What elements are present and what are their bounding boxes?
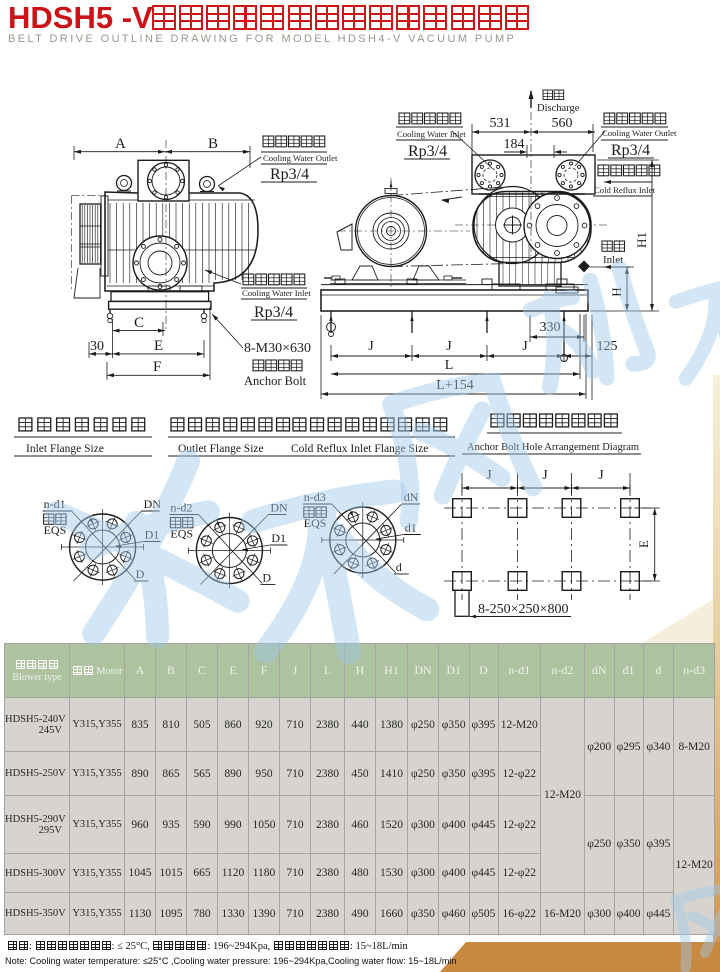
svg-text:J: J — [446, 339, 452, 354]
svg-text:C: C — [134, 315, 144, 331]
svg-text:EQS: EQS — [304, 516, 327, 530]
svg-text:Rp3/4: Rp3/4 — [254, 304, 293, 321]
svg-text:n-d1: n-d1 — [44, 497, 66, 511]
svg-text:n-d2: n-d2 — [170, 501, 192, 515]
svg-text:dN: dN — [404, 490, 419, 504]
svg-text:8-M30×630: 8-M30×630 — [244, 341, 311, 356]
svg-text:Rp3/4: Rp3/4 — [611, 142, 650, 159]
svg-text:Anchor Bolt: Anchor Bolt — [244, 374, 307, 388]
svg-text:J: J — [598, 468, 604, 483]
svg-text:J: J — [522, 339, 528, 354]
svg-text:A: A — [115, 136, 126, 152]
svg-text:Cold Reflux Inlet Flange Size: Cold Reflux Inlet Flange Size — [291, 443, 428, 455]
svg-text:Anchor Bolt Hole Arrangement D: Anchor Bolt Hole Arrangement Diagram — [467, 442, 639, 453]
svg-text:Cold Reflux Inlet: Cold Reflux Inlet — [594, 185, 655, 195]
svg-text:D: D — [136, 567, 145, 581]
svg-text:L: L — [445, 358, 454, 373]
svg-text:Discharge: Discharge — [537, 103, 580, 114]
svg-text:125: 125 — [597, 339, 618, 354]
svg-text:531: 531 — [490, 116, 511, 131]
svg-text:E: E — [154, 338, 163, 354]
svg-text:J: J — [486, 468, 492, 483]
svg-text:Cooling Water Outlet: Cooling Water Outlet — [263, 153, 338, 163]
svg-text:J: J — [542, 468, 548, 483]
svg-text:E: E — [636, 540, 651, 548]
svg-text:H1: H1 — [634, 232, 649, 248]
svg-text:EQS: EQS — [170, 527, 193, 541]
svg-text:184: 184 — [504, 137, 525, 152]
svg-text:D1: D1 — [271, 531, 286, 545]
svg-text:Rp3/4: Rp3/4 — [408, 143, 447, 160]
svg-text:DN: DN — [144, 497, 162, 511]
svg-text:d1: d1 — [405, 521, 417, 535]
svg-text:Inlet Flange Size: Inlet Flange Size — [26, 443, 104, 455]
svg-text:n-d3: n-d3 — [304, 490, 326, 504]
svg-text:8-250×250×800: 8-250×250×800 — [478, 602, 568, 617]
svg-text:D: D — [262, 571, 271, 585]
svg-text:Inlet: Inlet — [603, 254, 623, 266]
svg-text:L+154: L+154 — [436, 378, 473, 393]
svg-text:Outlet Flange Size: Outlet Flange Size — [178, 443, 264, 455]
svg-text:Cooling Water Inlet: Cooling Water Inlet — [242, 288, 311, 298]
svg-text:DN: DN — [270, 501, 288, 515]
svg-text:d: d — [396, 560, 402, 574]
svg-text:330: 330 — [540, 320, 561, 335]
svg-text:H: H — [609, 287, 624, 296]
svg-text:F: F — [153, 359, 161, 375]
svg-text:J: J — [368, 339, 374, 354]
svg-text:560: 560 — [552, 116, 573, 131]
svg-text:Rp3/4: Rp3/4 — [270, 166, 309, 183]
svg-text:EQS: EQS — [44, 523, 67, 537]
svg-text:D1: D1 — [145, 528, 160, 542]
svg-text:Cooling Water Outlet: Cooling Water Outlet — [602, 128, 677, 138]
svg-text:B: B — [208, 136, 218, 152]
svg-text:30: 30 — [90, 339, 104, 354]
